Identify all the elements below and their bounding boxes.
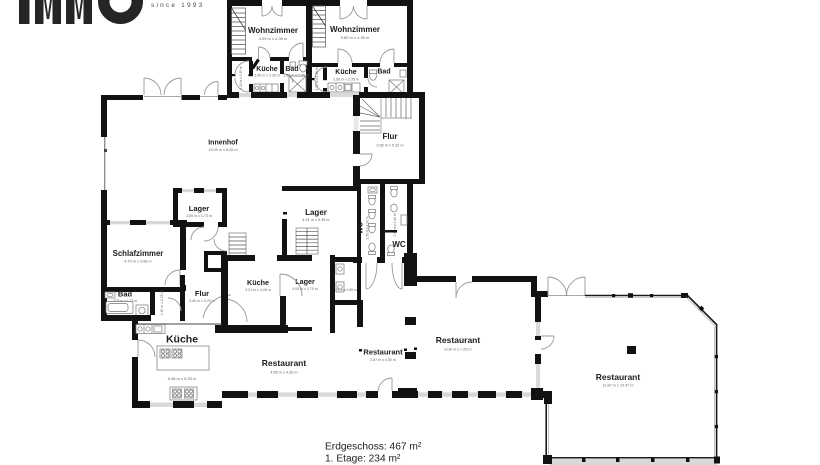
svg-text:Küche: Küche: [335, 69, 357, 76]
svg-text:4.41 m x 5.35 m: 4.41 m x 5.35 m: [302, 218, 329, 222]
svg-text:4.85 m x 4.30 m: 4.85 m x 4.30 m: [270, 371, 297, 375]
svg-text:Lager: Lager: [305, 208, 327, 217]
svg-text:Küche: Küche: [256, 66, 278, 73]
svg-text:Bad: Bad: [377, 69, 390, 76]
svg-text:11.87 m x 10.97 m: 11.87 m x 10.97 m: [602, 384, 633, 388]
svg-text:5.80 m x 4.35 m: 5.80 m x 4.35 m: [341, 35, 370, 40]
svg-text:Küche: Küche: [166, 334, 198, 346]
svg-text:Lager: Lager: [295, 277, 315, 286]
svg-text:1. Etage: 234 m²: 1. Etage: 234 m²: [325, 454, 401, 465]
svg-text:WC: WC: [358, 222, 365, 234]
svg-text:3.21 m x 4.28 m: 3.21 m x 4.28 m: [245, 288, 271, 292]
svg-text:Restaurant: Restaurant: [262, 358, 307, 368]
svg-text:Erdgeschoss: 467 m²: Erdgeschoss: 467 m²: [325, 442, 422, 453]
svg-text:Wohnzimmer: Wohnzimmer: [248, 26, 298, 35]
svg-text:Flur: Flur: [195, 289, 209, 298]
svg-text:1.15 m x 2.35 m: 1.15 m x 2.35 m: [315, 67, 319, 90]
svg-text:Bad: Bad: [118, 290, 133, 299]
svg-text:Flur: Flur: [382, 132, 397, 141]
svg-text:Bad: Bad: [285, 66, 298, 73]
svg-text:3.85 m x 5.32 m: 3.85 m x 5.32 m: [376, 144, 403, 148]
svg-text:2.05 m x 2.35 m: 2.05 m x 2.35 m: [254, 74, 280, 78]
svg-text:4.76 m x 0.65 m: 4.76 m x 0.65 m: [334, 288, 357, 292]
svg-text:Restaurant: Restaurant: [596, 372, 641, 382]
svg-text:1.40 m x 2.29 m: 1.40 m x 2.29 m: [160, 290, 164, 315]
svg-text:9.08 m x 7.25 m: 9.08 m x 7.25 m: [444, 348, 471, 352]
svg-text:since 1993: since 1993: [151, 2, 204, 9]
svg-text:4.09 m x 4.35 m: 4.09 m x 4.35 m: [259, 36, 288, 41]
svg-text:2.35 m x 4.90 m: 2.35 m x 4.90 m: [393, 213, 397, 236]
svg-text:Küche: Küche: [247, 278, 269, 287]
svg-text:Lager: Lager: [189, 204, 210, 213]
svg-text:9.48 m x 5.93 m: 9.48 m x 5.93 m: [168, 376, 197, 381]
svg-text:4.70 m x 3.98 m: 4.70 m x 3.98 m: [124, 260, 151, 264]
svg-text:Schlafzimmer: Schlafzimmer: [113, 249, 164, 258]
svg-text:3.05 m x 1.73 m: 3.05 m x 1.73 m: [186, 214, 212, 218]
svg-text:2.66 m x 2.35 m: 2.66 m x 2.35 m: [333, 78, 359, 82]
svg-text:Wohnzimmer: Wohnzimmer: [330, 25, 380, 34]
svg-text:2.87 m x 4.50 m: 2.87 m x 4.50 m: [370, 358, 396, 362]
svg-text:Restaurant: Restaurant: [363, 348, 403, 357]
svg-text:Restaurant: Restaurant: [436, 335, 481, 345]
svg-text:4.05 m x 2.70 m: 4.05 m x 2.70 m: [292, 287, 318, 291]
svg-text:19.00 m x 8.05 m: 19.00 m x 8.05 m: [208, 148, 237, 152]
svg-text:Innenhof: Innenhof: [208, 140, 238, 147]
svg-text:1.15 m x 2.35 m: 1.15 m x 2.35 m: [239, 66, 243, 89]
